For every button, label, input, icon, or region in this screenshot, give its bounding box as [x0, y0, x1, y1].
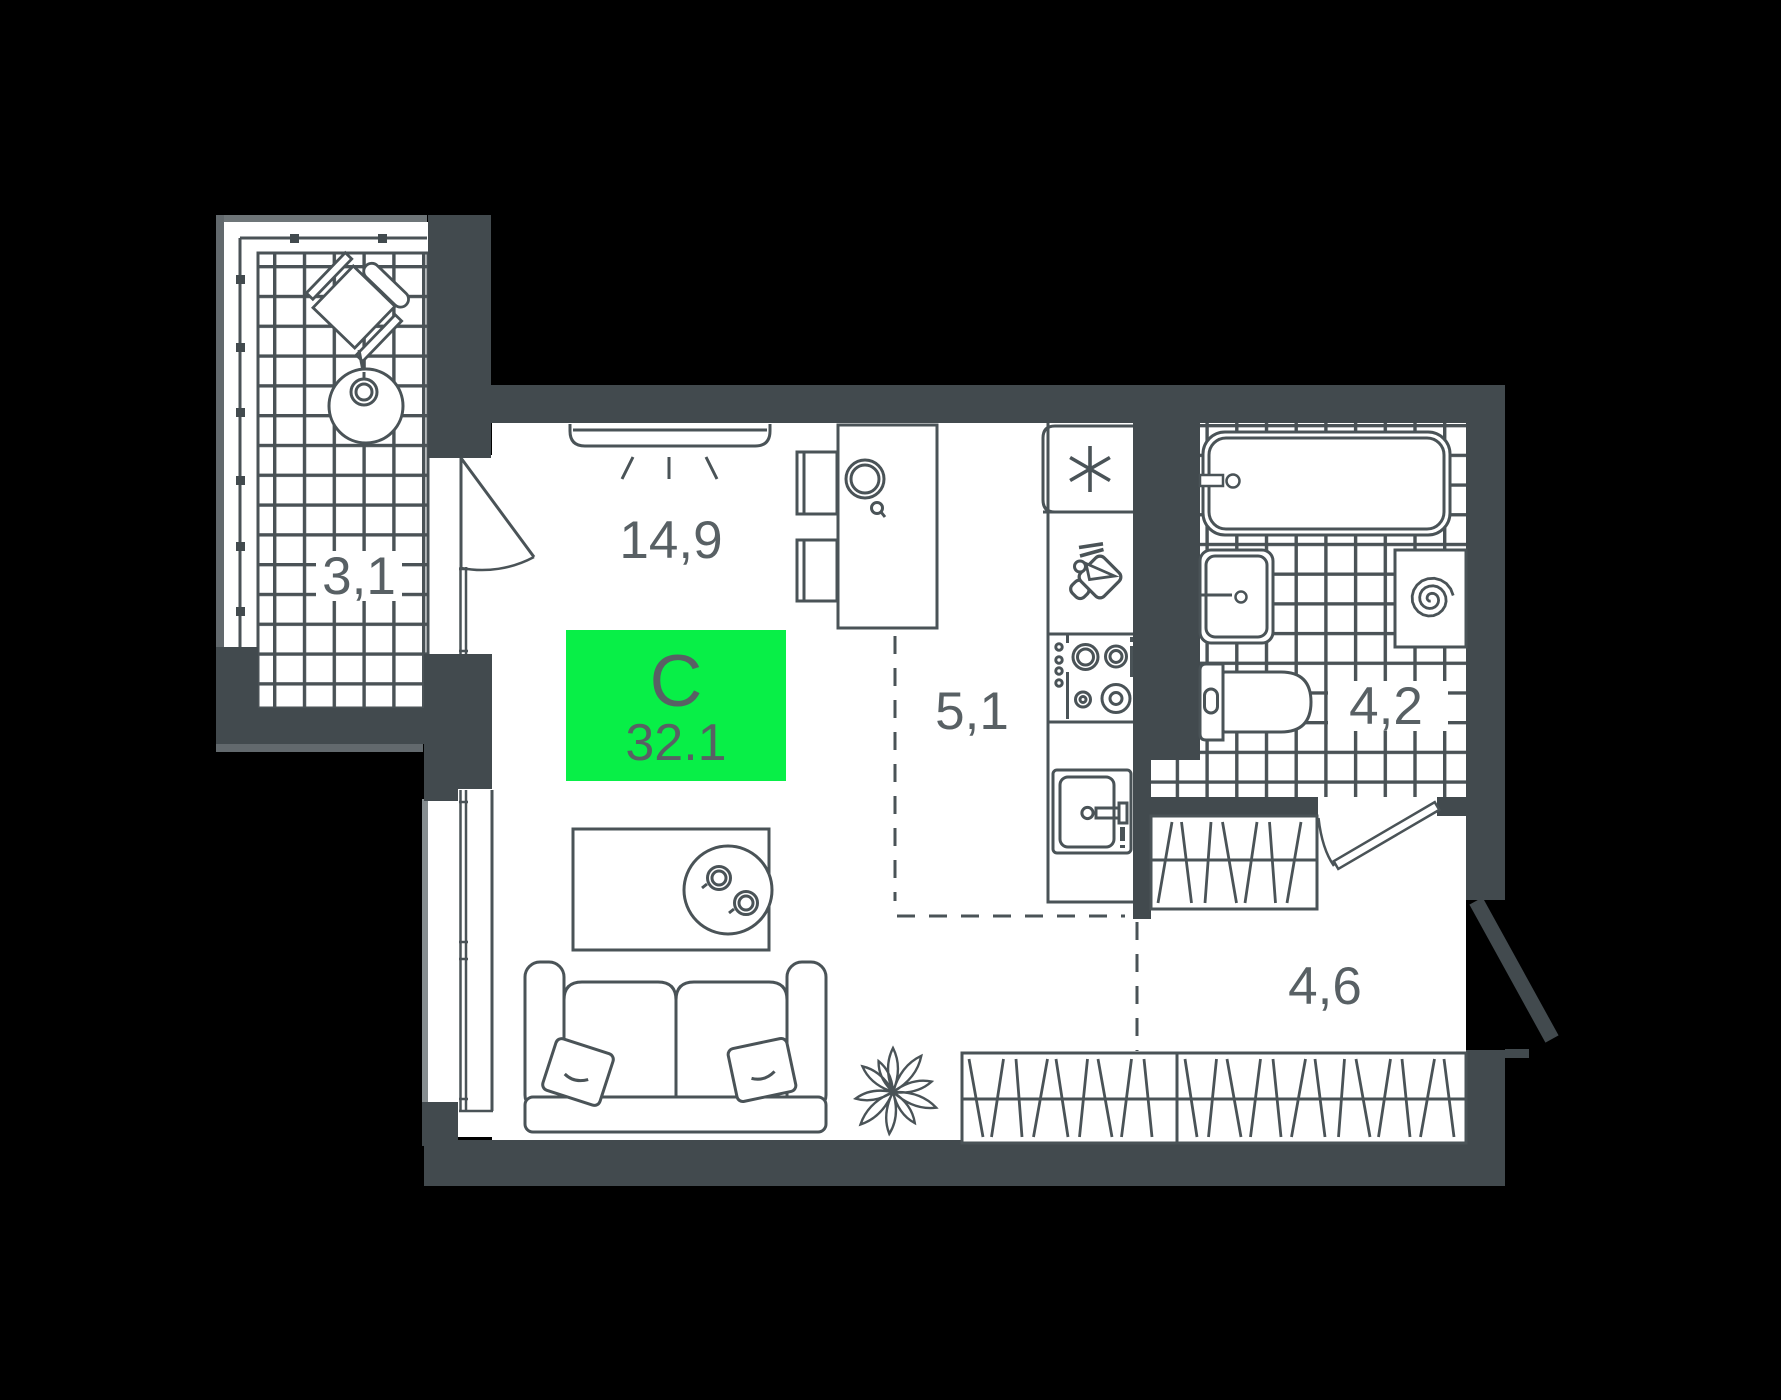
svg-text:4,6: 4,6 [1288, 957, 1362, 1016]
svg-text:5,1: 5,1 [935, 682, 1009, 741]
svg-text:3,1: 3,1 [322, 547, 396, 606]
svg-text:14,9: 14,9 [619, 511, 722, 570]
svg-text:4,2: 4,2 [1349, 677, 1423, 736]
svg-text:С: С [650, 641, 703, 722]
svg-text:32.1: 32.1 [625, 714, 726, 772]
